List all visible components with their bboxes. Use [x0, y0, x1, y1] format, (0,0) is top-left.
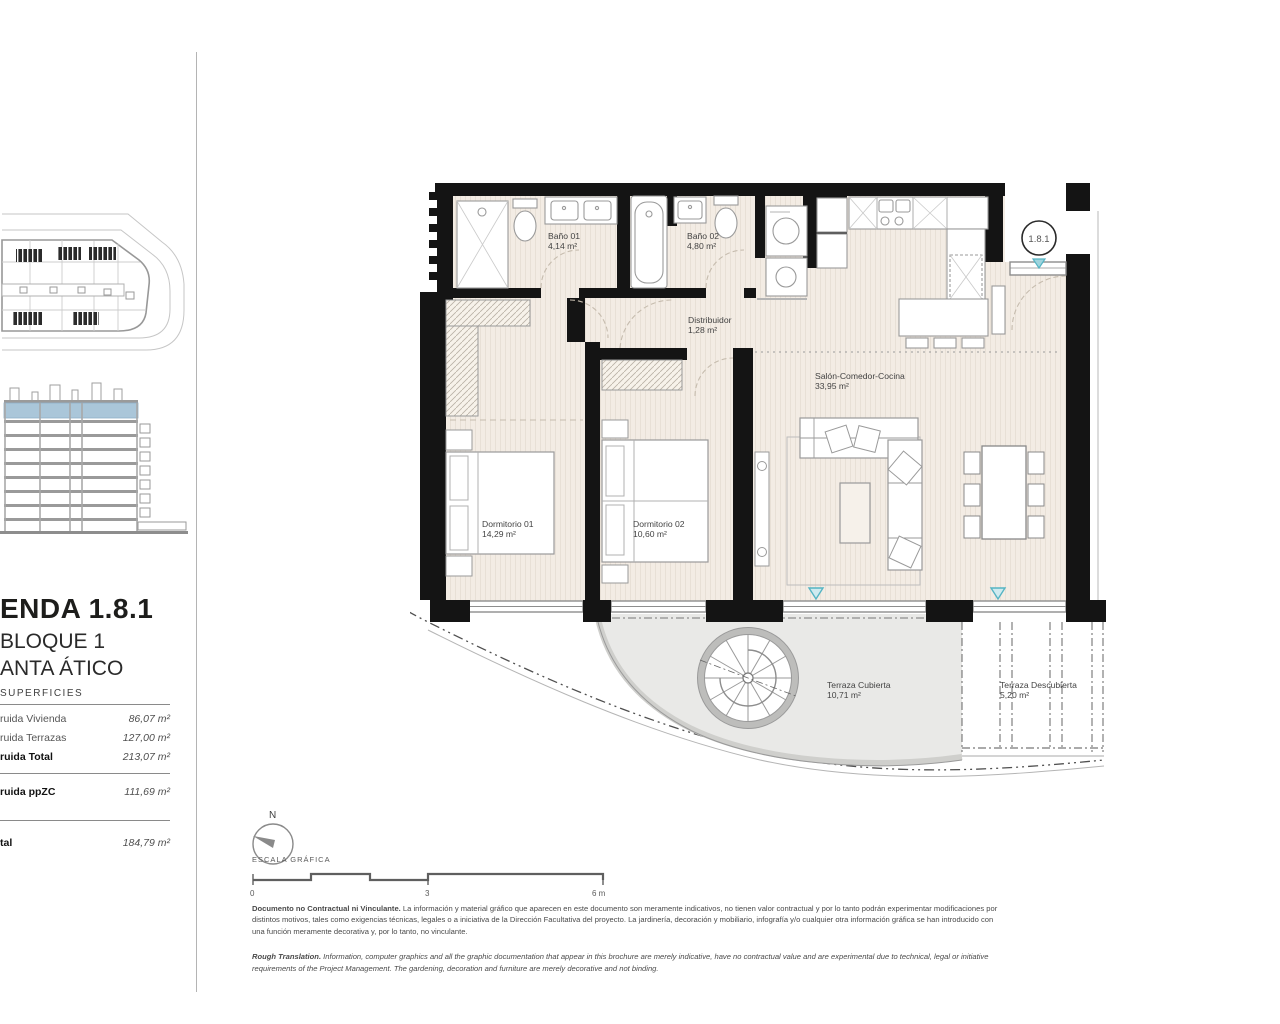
- building-elevation: [0, 372, 192, 562]
- scale-tick-0: 0: [250, 889, 255, 898]
- room-label-dormitorio-01: Dormitorio 01: [482, 519, 534, 529]
- elevation-highlight-atico: [4, 403, 138, 418]
- floor-plan: 1.8.1 Baño 01 4,14 m² Baño 02 4,80 m² Di…: [410, 155, 1122, 823]
- room-label-banyo-02: Baño 02: [687, 231, 719, 241]
- room-label-dormitorio-02: Dormitorio 02: [633, 519, 685, 529]
- scale-tick-3: 3: [425, 889, 430, 898]
- dining-set: [964, 446, 1044, 539]
- laundry-stack: [766, 206, 807, 296]
- legal-paragraph-en: Rough Translation. Information, computer…: [252, 951, 1002, 974]
- table-row: tal 184,79 m²: [0, 837, 170, 849]
- scale-bar: ESCALA GRÁFICA 0 3 6 m: [248, 850, 620, 900]
- superficies-heading: SUPERFICIES: [0, 688, 170, 705]
- spiral-stair: [698, 628, 799, 729]
- north-label: N: [269, 810, 276, 821]
- room-label-banyo-01: Baño 01: [548, 231, 580, 241]
- block-label: BLOQUE 1: [0, 628, 123, 655]
- table-row: ruida Vivienda 86,07 m²: [0, 713, 170, 725]
- table-row: ruida Terrazas 127,00 m²: [0, 732, 170, 744]
- room-area-dormitorio-01: 14,29 m²: [482, 529, 516, 539]
- table-row: ruida Total 213,07 m²: [0, 751, 170, 763]
- sidebar-divider: [196, 52, 197, 992]
- room-area-banyo-01: 4,14 m²: [548, 241, 577, 251]
- unit-badge-label: 1.8.1: [1028, 234, 1049, 245]
- brochure-page: ENDA 1.8.1 BLOQUE 1 ANTA ÁTICO SUPERFICI…: [0, 0, 1280, 1024]
- room-label-salon: Salón-Comedor-Cocina: [815, 371, 905, 381]
- floor-label: ANTA ÁTICO: [0, 655, 123, 682]
- site-key-plan: [0, 192, 192, 370]
- room-area-terraza-descubierta: 5,20 m²: [1000, 690, 1029, 700]
- legal-lead-en: Rough Translation.: [252, 952, 321, 961]
- legal-lead-es: Documento no Contractual ni Vinculante.: [252, 904, 401, 913]
- legal-disclaimer: Documento no Contractual ni Vinculante. …: [252, 903, 1002, 988]
- room-label-terraza-cubierta: Terraza Cubierta: [827, 680, 891, 690]
- scale-tick-6: 6 m: [592, 889, 606, 898]
- legal-body-en: Information, computer graphics and all t…: [252, 952, 988, 972]
- table-separator: [0, 773, 170, 774]
- compass-needle: [253, 836, 275, 848]
- room-area-banyo-02: 4,80 m²: [687, 241, 716, 251]
- room-label-terraza-descubierta: Terraza Descubierta: [1000, 680, 1077, 690]
- legal-paragraph-es: Documento no Contractual ni Vinculante. …: [252, 903, 1002, 937]
- block-floor-label: BLOQUE 1 ANTA ÁTICO: [0, 628, 123, 683]
- scale-bar-label: ESCALA GRÁFICA: [252, 855, 331, 864]
- room-area-salon: 33,95 m²: [815, 381, 849, 391]
- room-area-dormitorio-02: 10,60 m²: [633, 529, 667, 539]
- bathtub: [631, 196, 667, 288]
- room-area-terraza-cubierta: 10,71 m²: [827, 690, 861, 700]
- room-area-distribuidor: 1,28 m²: [688, 325, 717, 335]
- room-label-distribuidor: Distribuidor: [688, 315, 732, 325]
- unit-title: ENDA 1.8.1: [0, 593, 153, 625]
- superficies-table: SUPERFICIES ruida Vivienda 86,07 m² ruid…: [0, 688, 170, 856]
- hall-closet: [992, 286, 1005, 334]
- table-separator: [0, 820, 170, 821]
- table-row: ruida ppZC 111,69 m²: [0, 786, 170, 798]
